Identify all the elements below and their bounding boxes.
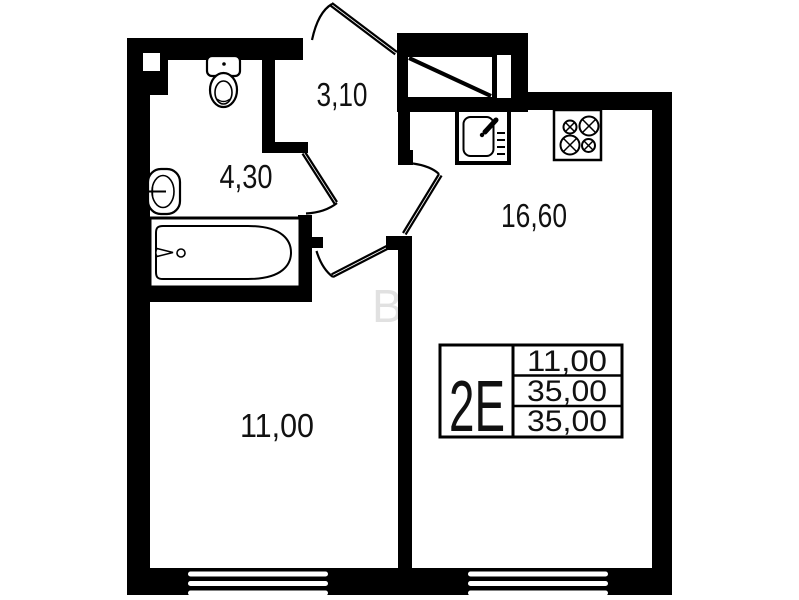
washbasin-icon [148, 169, 180, 214]
glazing-line [188, 581, 328, 586]
wardrobe-icon [408, 57, 492, 97]
bathroom-area-label: 4,30 [220, 158, 273, 195]
wall-bathroom-jog [262, 142, 308, 153]
wall-left [127, 38, 150, 595]
kitchen-sink-icon [457, 110, 509, 163]
floor-plan-canvas: B [0, 0, 799, 600]
sink-faucet-base [480, 133, 484, 137]
wall-kitchen-top [510, 92, 672, 110]
hallway-area-label: 3,10 [317, 76, 368, 113]
glazing-line [468, 591, 608, 596]
wall-door-jamb-stub [310, 237, 323, 248]
bathtub-icon [150, 218, 300, 287]
glazing-line [188, 591, 328, 596]
kitchen-area-label: 16,60 [501, 197, 567, 234]
table-value-row1: 11,00 [527, 345, 607, 378]
window-icon-right [468, 572, 608, 596]
glazing-line [468, 572, 608, 577]
wall-right [652, 92, 672, 595]
window-icon-left [188, 572, 328, 596]
room-area-label: 11,00 [240, 407, 314, 444]
unit-info-table: 2E 11,00 35,00 35,00 [440, 345, 622, 447]
glazing-line [468, 581, 608, 586]
wall-niche [143, 53, 160, 71]
toilet-icon [207, 56, 240, 107]
tub-drain [177, 249, 185, 257]
shaft-niche [497, 55, 511, 98]
toilet-bowl-inner [215, 81, 232, 104]
table-value-row3: 35,00 [527, 405, 607, 438]
floor-plan: B [0, 0, 799, 600]
wall-bathroom-right-upper [262, 60, 275, 143]
toilet-button [222, 62, 226, 66]
stove-icon [554, 110, 601, 160]
wall-kitchen-door-jamb [398, 150, 413, 165]
glazing-line [188, 572, 328, 577]
unit-type-label: 2E [449, 367, 505, 447]
wall-dividing [398, 236, 412, 568]
table-value-row2: 35,00 [527, 375, 607, 408]
